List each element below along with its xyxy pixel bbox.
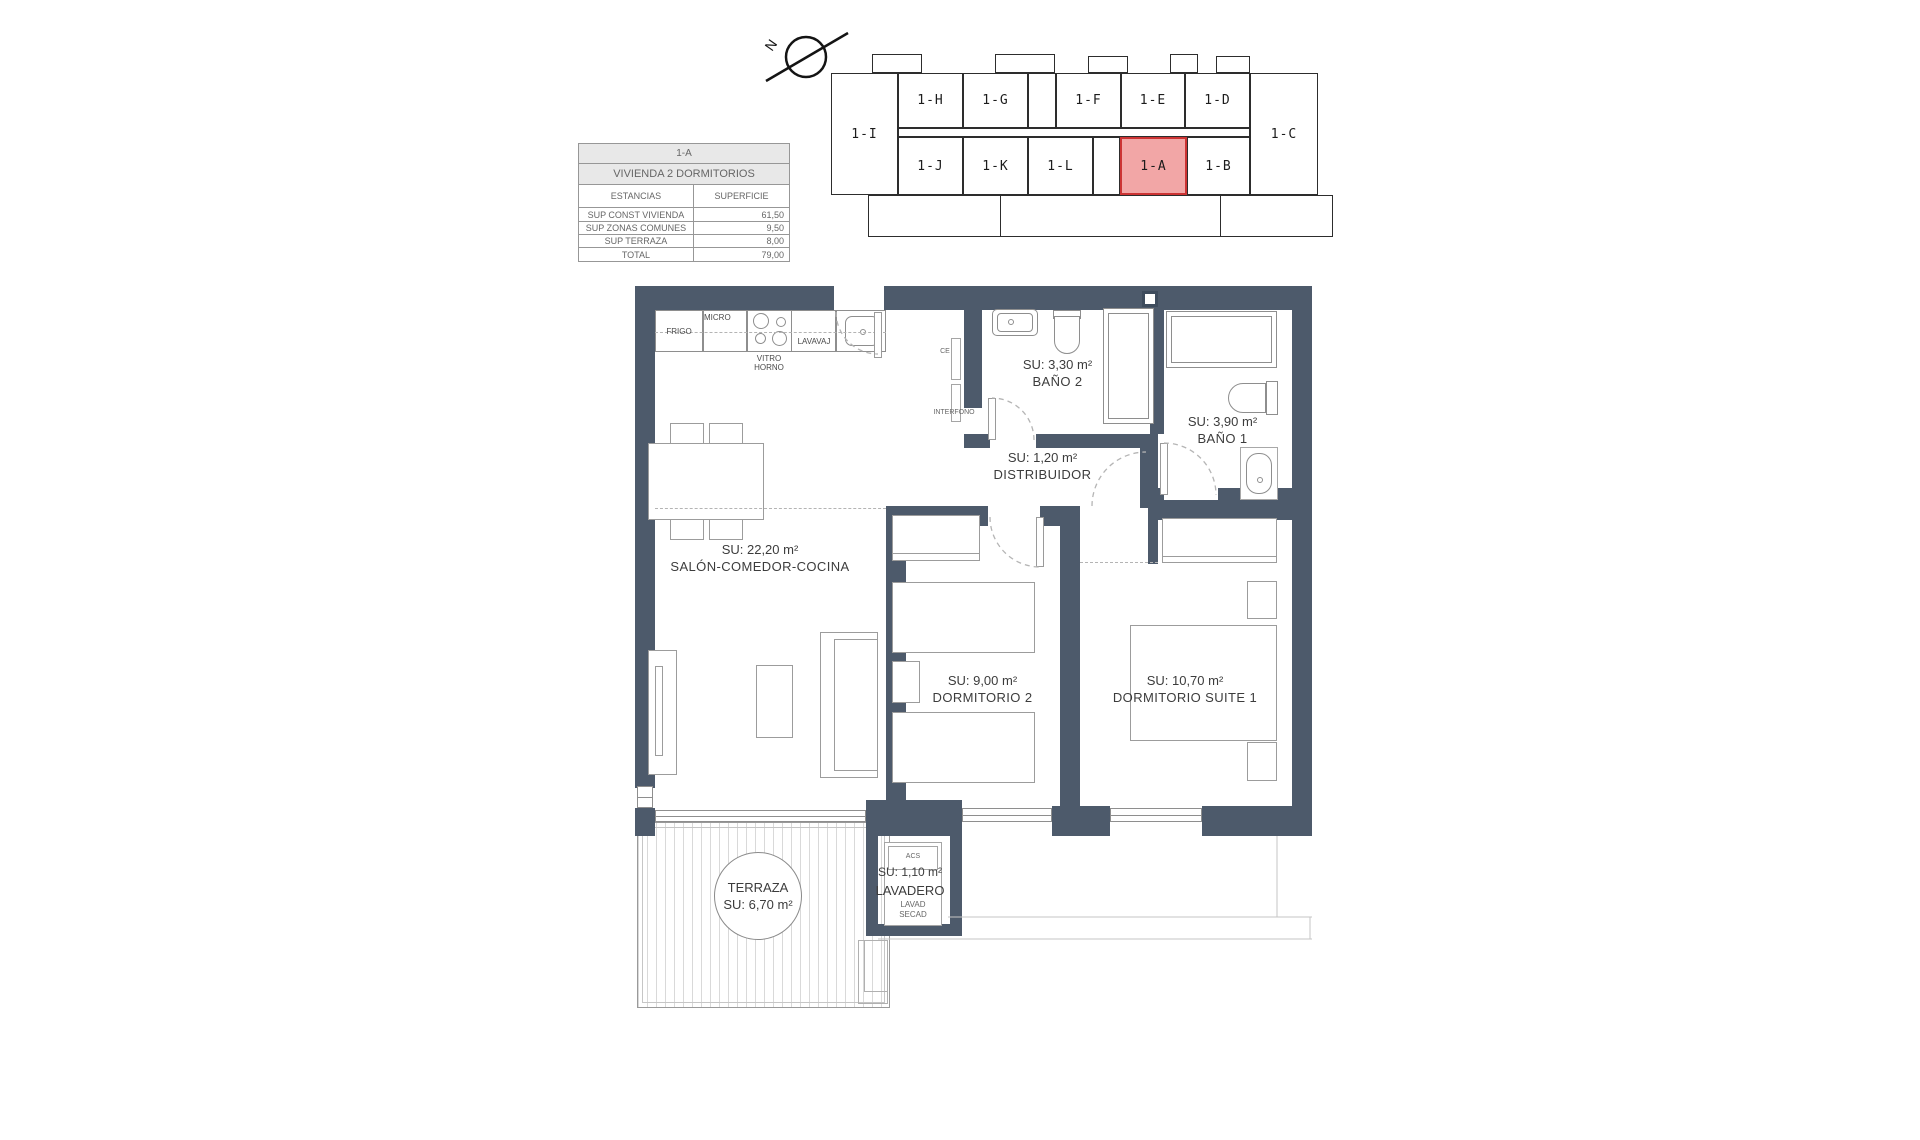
keyplan-core bbox=[1028, 73, 1056, 128]
keyplan-roof-notch bbox=[995, 54, 1055, 73]
chair bbox=[670, 519, 704, 540]
bano1-door-arc bbox=[1164, 443, 1216, 495]
wall bbox=[635, 808, 655, 836]
unit-info-table: 1-A VIVIENDA 2 DORMITORIOS ESTANCIAS SUP… bbox=[578, 143, 790, 262]
keyplan-unit-1E: 1-E bbox=[1121, 73, 1185, 128]
burner bbox=[776, 317, 786, 327]
bed bbox=[892, 712, 1035, 783]
room-name: DORMITORIO SUITE 1 bbox=[1095, 689, 1275, 706]
bathroom-sink-basin bbox=[997, 313, 1033, 332]
row-label: TOTAL bbox=[579, 248, 694, 261]
keyplan-corridor bbox=[898, 128, 1250, 137]
keyplan-unit-1L: 1-L bbox=[1028, 137, 1093, 195]
room-area: SU: 3,90 m² bbox=[1155, 413, 1290, 430]
chair bbox=[709, 423, 743, 444]
room-name: BAÑO 2 bbox=[990, 373, 1125, 390]
interfono-label: INTERFONO bbox=[922, 409, 986, 416]
bed bbox=[892, 582, 1035, 653]
col-header-superficie: SUPERFICIE bbox=[694, 185, 789, 207]
lavad-label: LAVAD bbox=[883, 900, 943, 909]
dormitorio2-label: SU: 9,00 m² DORMITORIO 2 bbox=[895, 672, 1070, 706]
sink-drain bbox=[1008, 319, 1014, 325]
keyplan-core bbox=[1093, 137, 1120, 195]
electrical-panel bbox=[951, 384, 961, 422]
wall bbox=[1158, 500, 1292, 520]
keyplan-unit-1J: 1-J bbox=[898, 137, 963, 195]
row-label: SUP CONST VIVIENDA bbox=[579, 208, 694, 221]
burner bbox=[753, 313, 769, 329]
bano2-label: SU: 3,30 m² BAÑO 2 bbox=[990, 356, 1125, 390]
table-row: SUP ZONAS COMUNES 9,50 bbox=[579, 221, 789, 234]
wardrobe-line bbox=[893, 553, 979, 554]
keyplan-unit-1I: 1-I bbox=[831, 73, 898, 195]
room-area: SU: 1,20 m² bbox=[960, 449, 1125, 466]
wall bbox=[635, 286, 834, 310]
lavadero-area: SU: 1,10 m² bbox=[840, 864, 980, 881]
shower-tray bbox=[1171, 316, 1272, 363]
wall bbox=[884, 286, 1312, 310]
keyplan-unit-1C: 1-C bbox=[1250, 73, 1318, 195]
coffee-table bbox=[756, 665, 793, 738]
vitro-label: VITRO bbox=[748, 354, 790, 363]
lavadero-name: LAVADERO bbox=[840, 882, 980, 899]
col-header-estancias: ESTANCIAS bbox=[579, 185, 694, 207]
room-area: SU: 6,70 m² bbox=[723, 896, 792, 913]
nightstand bbox=[1247, 742, 1277, 781]
table-row: TOTAL 79,00 bbox=[579, 247, 789, 261]
bano1-label: SU: 3,90 m² BAÑO 1 bbox=[1155, 413, 1290, 447]
vent-shaft bbox=[1142, 291, 1158, 307]
table-title: 1-A bbox=[579, 144, 789, 163]
wardrobe bbox=[892, 515, 980, 561]
terraza-step bbox=[864, 940, 888, 992]
room-area: SU: 22,20 m² bbox=[640, 541, 880, 558]
wardrobe-line bbox=[1163, 556, 1276, 557]
sofa-seat bbox=[834, 639, 878, 771]
keyplan-unit-1B: 1-B bbox=[1187, 137, 1250, 195]
entrance-door-leaf bbox=[874, 312, 882, 358]
keyplan-roof-notch bbox=[872, 54, 922, 73]
room-area: SU: 3,30 m² bbox=[990, 356, 1125, 373]
room-name: SALÓN-COMEDOR-COCINA bbox=[640, 558, 880, 575]
keyplan-roof-notch bbox=[1088, 56, 1128, 73]
fridge-label: FRIGO bbox=[658, 327, 700, 336]
bathroom-sink bbox=[1246, 453, 1272, 494]
wall bbox=[1148, 506, 1158, 564]
room-name: BAÑO 1 bbox=[1155, 430, 1290, 447]
room-area: SU: 9,00 m² bbox=[895, 672, 1070, 689]
micro-label: MICRO bbox=[704, 313, 746, 322]
keyplan-unit-1G: 1-G bbox=[963, 73, 1028, 128]
chair bbox=[670, 423, 704, 444]
terraza-label-circle: TERRAZA SU: 6,70 m² bbox=[714, 852, 802, 940]
wall bbox=[1036, 434, 1158, 448]
floor-plan-page: 1-A VIVIENDA 2 DORMITORIOS ESTANCIAS SUP… bbox=[0, 0, 1920, 1140]
row-value: 8,00 bbox=[694, 235, 789, 247]
keyplan-unit-1A-highlighted: 1-A bbox=[1120, 137, 1187, 195]
suite-dashed-line bbox=[1080, 562, 1158, 563]
door-leaf bbox=[1036, 517, 1044, 567]
keyplan-roof-notch bbox=[1216, 56, 1250, 73]
chair bbox=[709, 519, 743, 540]
room-name: DORMITORIO 2 bbox=[895, 689, 1070, 706]
keyplan-roof-notch bbox=[1170, 54, 1198, 73]
wall bbox=[866, 800, 962, 836]
window bbox=[962, 808, 1052, 822]
secad-label: SECAD bbox=[883, 910, 943, 919]
sink-drain bbox=[1257, 477, 1263, 483]
lavavaj-label: LAVAVAJ bbox=[792, 337, 836, 346]
toilet-bowl bbox=[1228, 383, 1266, 413]
nightstand bbox=[1247, 581, 1277, 619]
toilet-tank bbox=[1266, 381, 1278, 415]
door-leaf bbox=[988, 398, 996, 440]
table-row: SUP CONST VIVIENDA 61,50 bbox=[579, 207, 789, 221]
living-dashed-line bbox=[655, 508, 886, 509]
wall bbox=[1060, 506, 1080, 808]
tv bbox=[655, 666, 663, 756]
wall bbox=[964, 434, 990, 448]
row-value: 61,50 bbox=[694, 208, 789, 221]
acs-label: ACS bbox=[888, 853, 938, 860]
keyplan-unit-1D: 1-D bbox=[1185, 73, 1250, 128]
room-name: TERRAZA bbox=[728, 879, 789, 896]
burner bbox=[755, 333, 766, 344]
north-letter: N bbox=[761, 36, 780, 53]
window bbox=[637, 786, 653, 808]
keyplan-unit-1F: 1-F bbox=[1056, 73, 1121, 128]
keyplan-band-divider bbox=[1220, 195, 1221, 237]
toilet-bowl bbox=[1054, 316, 1080, 354]
wall bbox=[1292, 286, 1312, 810]
row-label: SUP TERRAZA bbox=[579, 235, 694, 247]
door-leaf bbox=[1160, 443, 1168, 495]
row-value: 9,50 bbox=[694, 222, 789, 234]
bano2-door-arc bbox=[992, 398, 1034, 440]
room-name: DISTRIBUIDOR bbox=[960, 466, 1125, 483]
keyplan-lower-band bbox=[868, 195, 1333, 237]
row-label: SUP ZONAS COMUNES bbox=[579, 222, 694, 234]
table-subtitle: VIVIENDA 2 DORMITORIOS bbox=[579, 163, 789, 184]
dorm2-door-arc bbox=[990, 517, 1040, 567]
burner bbox=[772, 331, 787, 346]
ce-label: CE bbox=[938, 348, 952, 355]
row-value: 79,00 bbox=[694, 248, 789, 261]
wall bbox=[1052, 806, 1110, 836]
distribuidor-label: SU: 1,20 m² DISTRIBUIDOR bbox=[960, 449, 1125, 483]
salon-label: SU: 22,20 m² SALÓN-COMEDOR-COCINA bbox=[640, 541, 880, 575]
wall bbox=[1202, 806, 1312, 836]
room-area: SU: 10,70 m² bbox=[1095, 672, 1275, 689]
electrical-panel bbox=[951, 338, 961, 380]
keyplan-unit-1K: 1-K bbox=[963, 137, 1028, 195]
sliding-window bbox=[655, 810, 866, 822]
keyplan-band-divider bbox=[1000, 195, 1001, 237]
suite-label: SU: 10,70 m² DORMITORIO SUITE 1 bbox=[1095, 672, 1275, 706]
keyplan-unit-1H: 1-H bbox=[898, 73, 963, 128]
horno-label: HORNO bbox=[748, 363, 790, 372]
wall bbox=[964, 310, 982, 408]
table-row: SUP TERRAZA 8,00 bbox=[579, 234, 789, 247]
window bbox=[1110, 808, 1202, 822]
